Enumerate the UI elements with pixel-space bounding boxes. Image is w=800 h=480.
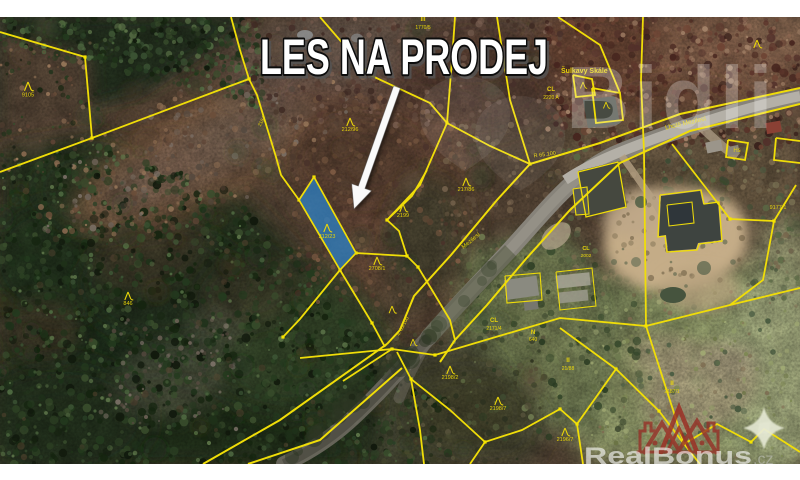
svg-text:2171/4: 2171/4 [486,326,502,332]
svg-text:2196/7: 2196/7 [557,437,574,443]
svg-text:2220 A: 2220 A [543,95,559,101]
svg-text:640: 640 [529,337,538,343]
svg-text:2708/1: 2708/1 [369,266,386,272]
svg-text:II: II [566,357,570,364]
svg-text:846: 846 [123,301,132,307]
svg-text:2198/2: 2198/2 [442,375,459,381]
svg-text:2002: 2002 [581,253,592,259]
svg-text:9177/1: 9177/1 [770,205,787,211]
svg-text:217/86: 217/86 [458,187,475,193]
svg-text:N: N [531,330,535,336]
svg-text:Bidli: Bidli [566,48,777,147]
svg-text:212/96: 212/96 [342,127,359,133]
svg-text:21/88: 21/88 [562,366,575,372]
svg-text:9105: 9105 [22,92,34,98]
svg-text:LES NA PRODEJ: LES NA PRODEJ [260,29,548,85]
svg-text:CL: CL [582,246,590,252]
svg-text:2199: 2199 [397,213,409,219]
svg-text:II: II [670,380,674,387]
svg-text:.cz: .cz [753,451,773,468]
svg-text:CL: CL [490,318,498,324]
svg-text:RealBonus: RealBonus [584,443,752,470]
svg-text:2198/7: 2198/7 [490,406,507,412]
svg-text:Hs: Hs [733,148,740,154]
svg-text:2187/1: 2187/1 [664,389,680,395]
svg-text:III: III [420,17,425,23]
svg-text:212/23: 212/23 [319,234,336,240]
